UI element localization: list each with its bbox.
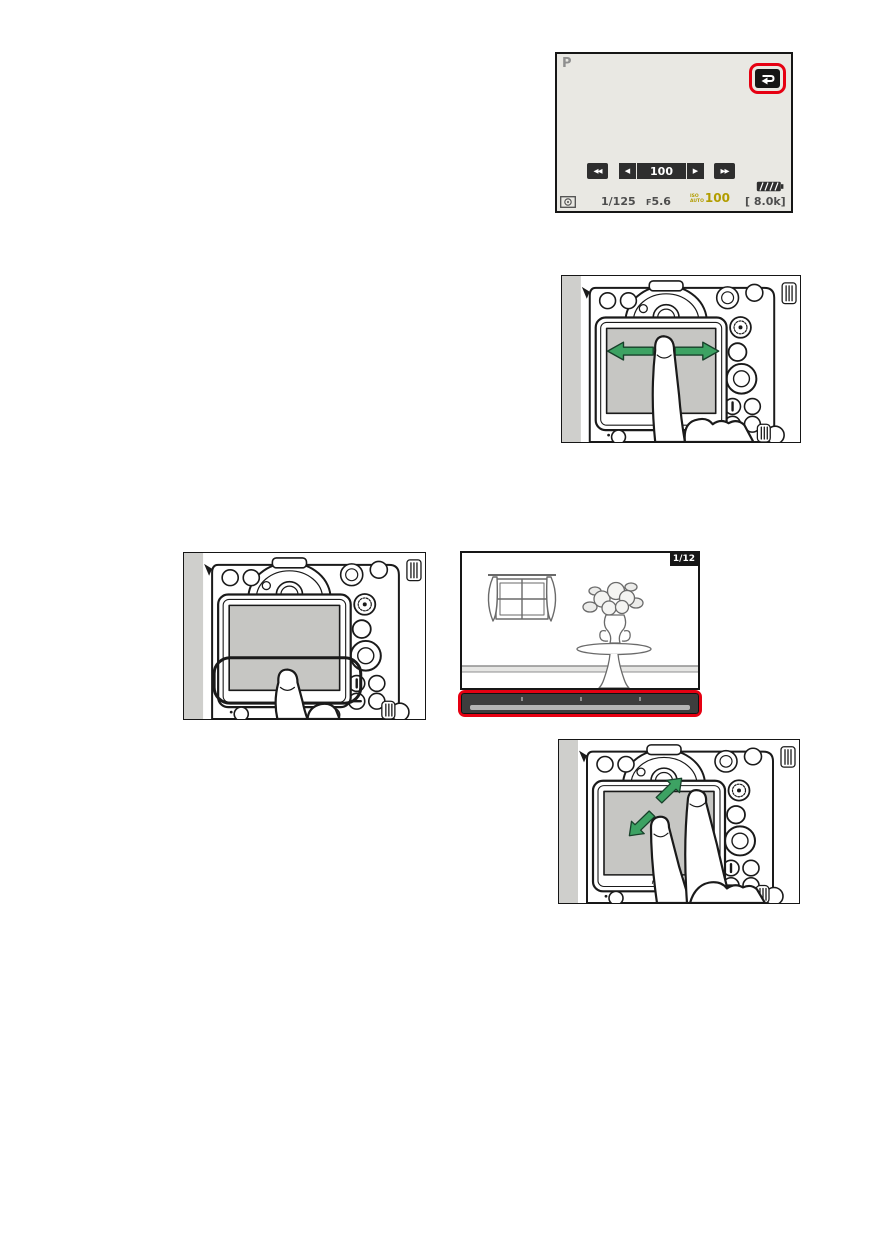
skip-back-button[interactable]: ◀◀	[587, 163, 608, 179]
bar-tick	[639, 697, 641, 701]
return-button[interactable]	[755, 69, 780, 88]
photo-image: 1/12	[460, 551, 700, 690]
return-arrow-icon	[759, 72, 776, 85]
matrix-metering-icon	[560, 196, 576, 208]
camera-tap-illustration	[183, 552, 426, 720]
iso-sensitivity: ISOAUTO 100	[690, 192, 730, 204]
return-button-highlight	[749, 63, 786, 94]
step-back-button[interactable]: ◀	[619, 163, 636, 179]
manual-page: Nikon P ◀◀ ◀ 100 ▶ ▶▶	[0, 0, 894, 1260]
bar-tick	[521, 697, 523, 701]
frame-number-value[interactable]: 100	[637, 163, 686, 179]
bar-tick	[580, 697, 582, 701]
bar-slider-track[interactable]	[470, 705, 690, 710]
exposure-mode-indicator: P	[562, 56, 572, 71]
playback-info-screen: P ◀◀ ◀ 100 ▶ ▶▶ 1/125	[555, 52, 793, 213]
photo-playback-screen: 1/12	[458, 551, 702, 717]
battery-level-icon	[756, 181, 784, 192]
window-drawing	[488, 575, 556, 621]
camera-swipe-illustration	[561, 275, 801, 443]
frame-advance-bar[interactable]: ◀◀ ◀ 100 ▶ ▶▶	[587, 163, 735, 179]
frame-counter-badge: 1/12	[670, 553, 698, 566]
aperture: F5.6	[646, 195, 671, 208]
iso-value: 100	[705, 192, 730, 204]
camera-back-drawing	[184, 553, 425, 719]
shutter-speed: 1/125	[601, 195, 636, 208]
touch-frame-advance-bar[interactable]	[461, 693, 699, 714]
frame-advance-bar-highlight	[458, 690, 702, 717]
camera-pinch-illustration	[558, 739, 800, 904]
iso-auto-label: ISOAUTO	[690, 194, 704, 204]
skip-forward-button[interactable]: ▶▶	[714, 163, 735, 179]
step-forward-button[interactable]: ▶	[687, 163, 704, 179]
exposures-remaining: [ 8.0k]	[745, 195, 786, 208]
photo-line-drawing	[462, 553, 698, 688]
aperture-value: 5.6	[651, 195, 671, 208]
